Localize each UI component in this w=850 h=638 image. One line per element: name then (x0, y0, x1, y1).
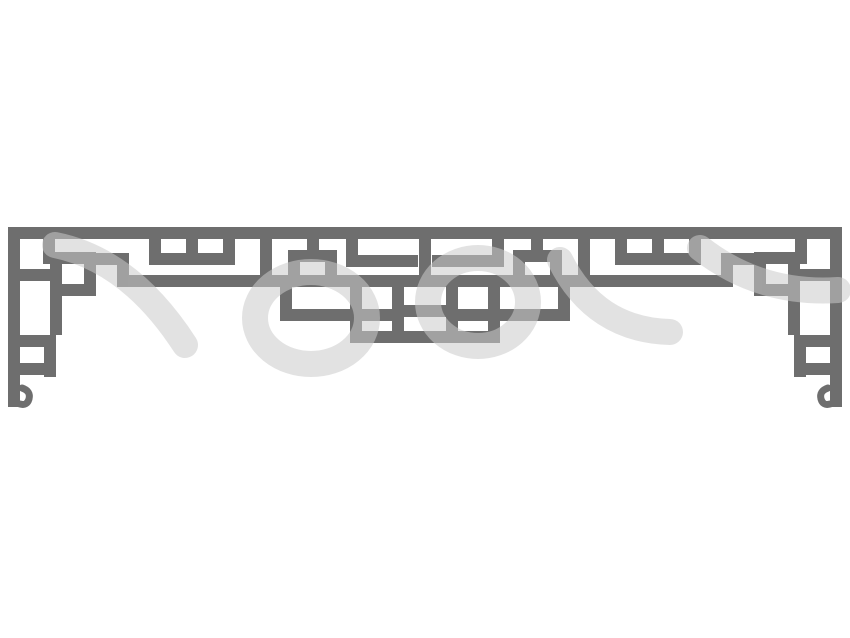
lattice-bar (794, 335, 830, 347)
lattice-bar (794, 347, 806, 377)
lattice-bar (20, 335, 56, 347)
lattice-bar (8, 227, 20, 407)
lattice-bar (149, 253, 235, 265)
lattice-bar (830, 227, 842, 407)
chinese-lattice-valance (0, 0, 850, 638)
lattice-bar (8, 227, 842, 239)
lattice-bar (346, 239, 358, 255)
image-canvas (0, 0, 850, 638)
scroll-hook-right (821, 388, 830, 404)
lattice-bar (652, 239, 664, 253)
scroll-hooks (20, 388, 830, 404)
lattice-bar (149, 239, 161, 253)
lattice-bar (50, 296, 62, 335)
lattice-bar (50, 284, 96, 296)
watermark-stroke (560, 260, 670, 332)
lattice-bar (20, 269, 50, 281)
lattice-bar (615, 253, 701, 265)
lattice-bar (223, 239, 235, 253)
lattice-bar (307, 239, 319, 250)
lattice-bar (531, 239, 543, 250)
lattice-bar (186, 239, 198, 253)
lattice-bar (615, 239, 627, 253)
lattice-bar (446, 309, 500, 321)
lattice-bar (346, 255, 418, 267)
scroll-hook-left (20, 388, 29, 404)
lattice-bar (44, 347, 56, 377)
